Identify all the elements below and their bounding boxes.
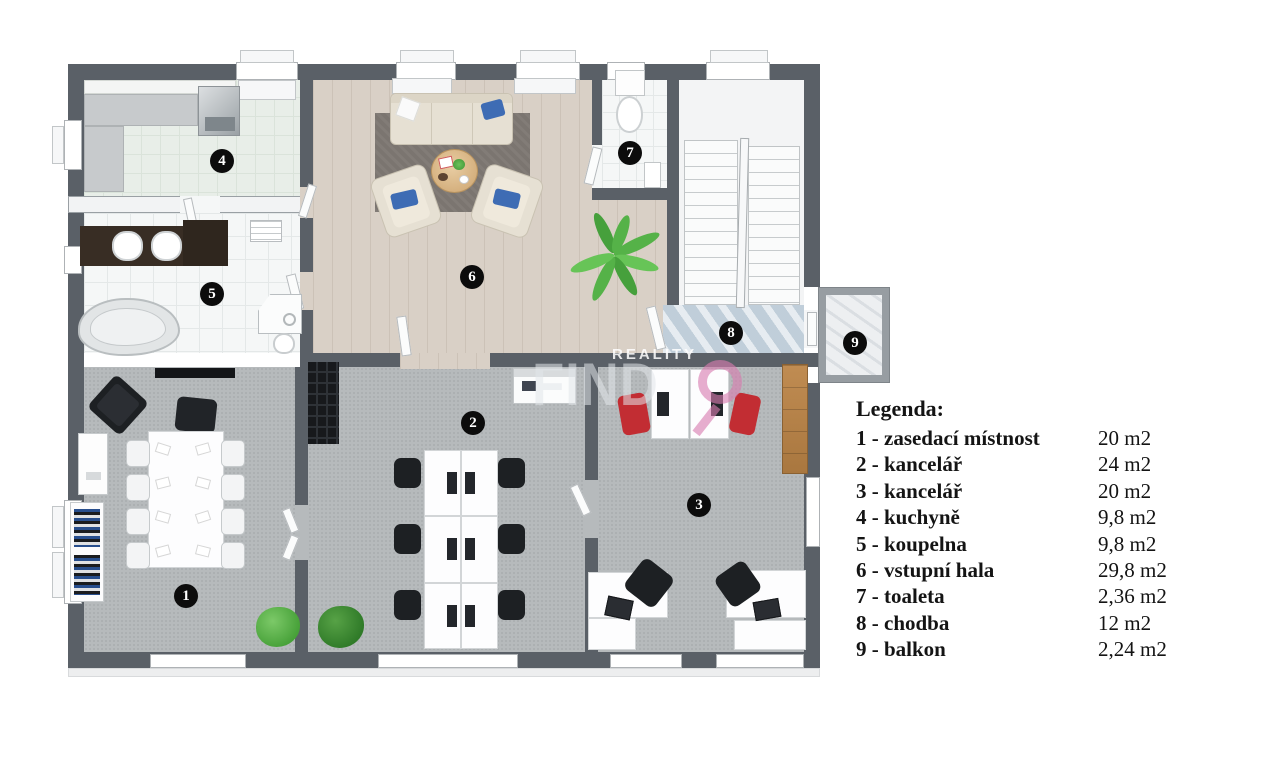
shower-drain bbox=[283, 313, 296, 326]
legend-label: 3 - kancelář bbox=[856, 479, 962, 503]
staircase-right-flight bbox=[748, 146, 800, 305]
legend-row: 2 - kancelář 24 m2 bbox=[856, 452, 1186, 478]
door-gap-room1-room2 bbox=[295, 505, 308, 560]
conference-chair bbox=[221, 440, 245, 467]
office-chair bbox=[498, 590, 525, 620]
kitchen-window-counter bbox=[238, 80, 296, 100]
outer-ledge-bottom bbox=[68, 668, 820, 677]
window-top-kitchen bbox=[236, 62, 298, 80]
legend-label: 7 - toaleta bbox=[856, 584, 945, 608]
wall-toilet-left bbox=[592, 64, 602, 145]
legend-label: 9 - balkon bbox=[856, 637, 946, 661]
floorplan-page: 1 2 3 4 5 6 7 8 9 REALITY FIND Legenda: … bbox=[0, 0, 1277, 768]
printer-panel bbox=[522, 381, 536, 391]
office3-desk-bottom-left-return bbox=[588, 618, 636, 650]
legend-row: 7 - toaleta 2,36 m2 bbox=[856, 584, 1186, 610]
legend-label: 1 - zasedací místnost bbox=[856, 426, 1040, 450]
legend-area: 2,36 m2 bbox=[1098, 584, 1167, 609]
toilet-bowl bbox=[616, 96, 643, 133]
sink-right bbox=[151, 231, 182, 261]
room-badge-7: 7 bbox=[618, 141, 642, 165]
legend-row: 9 - balkon 2,24 m2 bbox=[856, 637, 1186, 663]
legend-row: 8 - chodba 12 m2 bbox=[856, 611, 1186, 637]
table-plant bbox=[453, 159, 465, 170]
bookshelf bbox=[70, 502, 104, 602]
office-chair bbox=[394, 590, 421, 620]
printer-top bbox=[514, 369, 575, 377]
conference-chair bbox=[221, 542, 245, 569]
legend-label: 6 - vstupní hala bbox=[856, 558, 994, 582]
window-box-left-1 bbox=[52, 126, 64, 164]
stove-front bbox=[205, 117, 235, 131]
conference-chair bbox=[126, 474, 150, 501]
legend-area: 29,8 m2 bbox=[1098, 558, 1167, 583]
table-magazine bbox=[438, 156, 454, 170]
table-cup bbox=[459, 175, 469, 184]
window-sill-hall-2 bbox=[514, 78, 576, 94]
legend-area: 12 m2 bbox=[1098, 611, 1151, 636]
window-bottom-room1 bbox=[150, 654, 246, 668]
water-cooler bbox=[78, 433, 108, 495]
monitor bbox=[465, 538, 475, 560]
wood-cabinet bbox=[782, 364, 808, 474]
wall-stair-left bbox=[667, 64, 679, 305]
legend-area: 24 m2 bbox=[1098, 452, 1151, 477]
legend-area: 20 m2 bbox=[1098, 479, 1151, 504]
palm-plant bbox=[570, 205, 660, 300]
window-sill-hall-1 bbox=[392, 78, 452, 94]
bathroom-cabinet bbox=[183, 220, 228, 266]
wall-hall-offices bbox=[300, 353, 820, 367]
room-badge-5: 5 bbox=[200, 282, 224, 306]
legend-title: Legenda: bbox=[856, 396, 1186, 426]
window-box-top-2 bbox=[400, 50, 454, 63]
room-badge-3: 3 bbox=[687, 493, 711, 517]
legend-area: 9,8 m2 bbox=[1098, 532, 1156, 557]
toilet-cistern bbox=[615, 70, 645, 96]
toilet-bathroom bbox=[273, 333, 295, 354]
conference-chair bbox=[126, 542, 150, 569]
room-badge-6: 6 bbox=[460, 265, 484, 289]
window-left-kitchen bbox=[64, 120, 82, 170]
room-badge-9: 9 bbox=[843, 331, 867, 355]
office3-desk-top bbox=[690, 369, 729, 439]
sofa-seam-1 bbox=[431, 103, 432, 144]
bookshelf-row bbox=[74, 509, 100, 547]
window-box-left-2 bbox=[52, 506, 64, 548]
monitor bbox=[465, 472, 475, 494]
door-leaf-balcony bbox=[807, 312, 817, 346]
room-badge-4: 4 bbox=[210, 149, 234, 173]
legend-row: 6 - vstupní hala 29,8 m2 bbox=[856, 558, 1186, 584]
conference-chair bbox=[126, 440, 150, 467]
sink-left bbox=[112, 231, 143, 261]
legend-area: 20 m2 bbox=[1098, 426, 1151, 451]
outer-wall-right-upper bbox=[804, 64, 820, 287]
window-right-room3 bbox=[806, 477, 820, 547]
window-bottom-room3-b bbox=[716, 654, 804, 668]
presentation-screen bbox=[155, 368, 235, 378]
kitchen-counter-left bbox=[84, 126, 124, 192]
office-chair bbox=[498, 458, 525, 488]
bathtub-basin bbox=[90, 308, 166, 346]
window-top-stairs bbox=[706, 62, 770, 80]
bookshelf-row bbox=[74, 555, 100, 595]
room-badge-8: 8 bbox=[719, 321, 743, 345]
window-box-left-3 bbox=[52, 552, 64, 598]
kitchen-counter-top bbox=[84, 94, 198, 126]
room-badge-1: 1 bbox=[174, 584, 198, 608]
legend-row: 1 - zasedací místnost 20 m2 bbox=[856, 426, 1186, 452]
window-bottom-room2 bbox=[378, 654, 518, 668]
legend-area: 9,8 m2 bbox=[1098, 505, 1156, 530]
bathtub bbox=[78, 298, 180, 356]
window-box-top-3 bbox=[520, 50, 576, 63]
conference-chair bbox=[126, 508, 150, 535]
legend: Legenda: 1 - zasedací místnost 20 m2 2 -… bbox=[856, 396, 1186, 664]
legend-row: 5 - koupelna 9,8 m2 bbox=[856, 532, 1186, 558]
office3-desk-bottom-right-return bbox=[734, 620, 806, 650]
room-badge-2: 2 bbox=[461, 411, 485, 435]
monitor bbox=[657, 392, 669, 416]
sofa-seam-2 bbox=[472, 103, 473, 144]
printer bbox=[513, 368, 576, 404]
conference-chair bbox=[221, 474, 245, 501]
window-bottom-room3-a bbox=[610, 654, 682, 668]
towel-rack bbox=[250, 220, 282, 242]
water-cooler-detail bbox=[86, 472, 101, 480]
door-gap-hall-office2 bbox=[400, 353, 490, 369]
legend-label: 5 - koupelna bbox=[856, 532, 967, 556]
office-chair bbox=[394, 524, 421, 554]
table-bowl bbox=[438, 173, 448, 181]
monitor bbox=[447, 538, 457, 560]
wall-toilet-bottom bbox=[592, 188, 679, 200]
monitor bbox=[447, 605, 457, 627]
legend-row: 3 - kancelář 20 m2 bbox=[856, 479, 1186, 505]
kitchen-stove bbox=[198, 86, 240, 136]
monitor bbox=[711, 392, 723, 416]
monitor bbox=[465, 605, 475, 627]
office-chair bbox=[498, 524, 525, 554]
monitor bbox=[447, 472, 457, 494]
head-chair bbox=[174, 396, 217, 434]
coffee-table bbox=[431, 149, 478, 193]
toilet-sink bbox=[644, 162, 661, 188]
legend-row: 4 - kuchyně 9,8 m2 bbox=[856, 505, 1186, 531]
legend-label: 2 - kancelář bbox=[856, 452, 962, 476]
office-chair bbox=[394, 458, 421, 488]
conference-chair bbox=[221, 508, 245, 535]
storage-rack bbox=[308, 362, 339, 444]
legend-label: 8 - chodba bbox=[856, 611, 949, 635]
window-box-top-1 bbox=[240, 50, 294, 63]
window-box-top-4 bbox=[710, 50, 768, 63]
legend-label: 4 - kuchyně bbox=[856, 505, 960, 529]
staircase-left-flight bbox=[684, 140, 738, 305]
legend-area: 2,24 m2 bbox=[1098, 637, 1167, 662]
